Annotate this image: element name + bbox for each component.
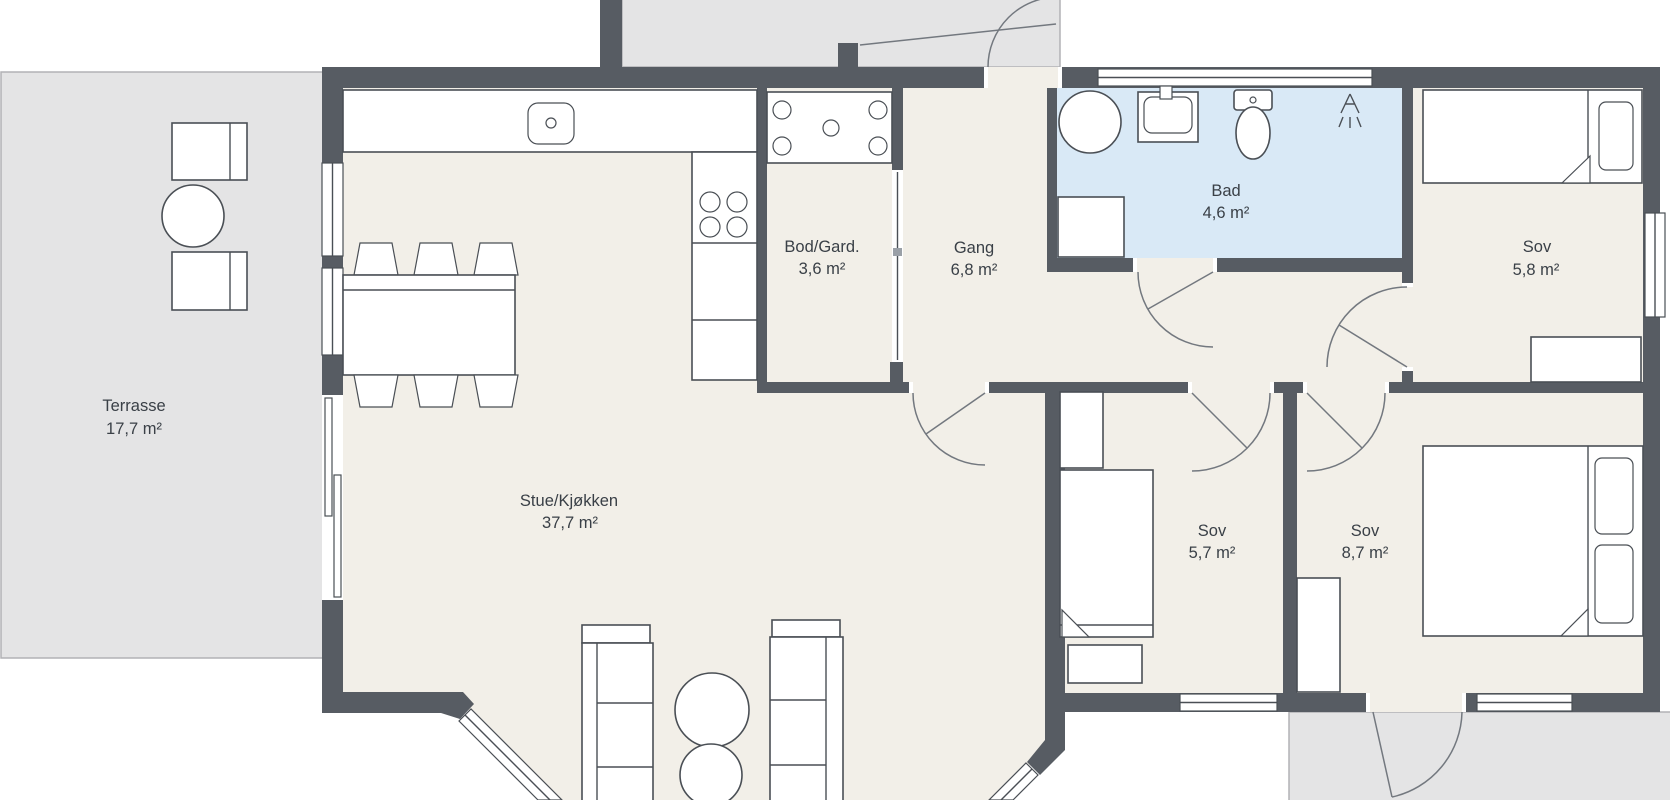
window-icon [1098,69,1372,86]
coffee-table-icon [675,673,749,747]
chair-icon [474,375,518,407]
chair-icon [354,243,398,275]
room-area: 4,6 m² [1203,204,1250,222]
washing-machine-icon [1059,91,1121,153]
wardrobe-icon [1060,392,1103,468]
chair-icon [414,243,458,275]
floor-plan: Terrasse 17,7 m² Stue/Kjøkken 37,7 m² Bo… [0,0,1670,800]
terrace-chair-icon [172,123,247,180]
dresser-icon [1531,337,1641,382]
room-name: Sov [1523,238,1552,256]
bay-floor [462,693,1045,800]
sofa-icon [582,625,653,800]
patio-area [1289,712,1670,800]
room-area: 37,7 m² [542,514,598,532]
window-icon [1180,694,1277,711]
room-area: 5,7 m² [1189,544,1236,562]
bath-cabinet-icon [1058,197,1124,257]
room-name: Bad [1211,182,1240,200]
pillow-icon [1595,458,1633,534]
room-name: Terrasse [102,397,165,415]
kitchen-cabinet-column [692,152,757,380]
bed-icon [1060,470,1153,637]
dining-set [343,243,518,407]
floor-plan-canvas: Terrasse 17,7 m² Stue/Kjøkken 37,7 m² Bo… [0,0,1670,800]
stove-icon [767,92,892,163]
room-name: Stue/Kjøkken [520,492,618,510]
bathroom-sink-icon [1138,86,1198,142]
chair-icon [354,375,398,407]
room-name: Sov [1198,522,1227,540]
wardrobe-icon [1297,578,1340,692]
window-icon [1477,694,1572,711]
room-area: 5,8 m² [1513,261,1560,279]
room-name: Gang [954,239,994,257]
room-name: Sov [1351,522,1380,540]
chair-icon [414,375,458,407]
sofa-icon [770,620,843,800]
terrace-area [1,72,331,658]
terrace-chair-icon [172,252,247,310]
room-area: 17,7 m² [106,420,162,438]
toilet-icon [1234,90,1272,159]
terrace-table-icon [162,185,224,247]
chair-icon [474,243,518,275]
dresser-icon [1068,645,1142,683]
room-area: 8,7 m² [1342,544,1389,562]
window-icon [1645,213,1665,317]
coffee-table-icon [680,744,742,800]
room-area: 6,8 m² [951,261,998,279]
window-icon [322,163,343,256]
sliding-door-icon [892,170,903,362]
sliding-door-icon [322,395,343,600]
room-name: Bod/Gard. [784,238,859,256]
room-area: 3,6 m² [799,260,846,278]
window-icon [322,268,343,355]
pillow-icon [1599,102,1633,170]
kitchen-sink-icon [528,103,574,144]
pillow-icon [1595,545,1633,623]
